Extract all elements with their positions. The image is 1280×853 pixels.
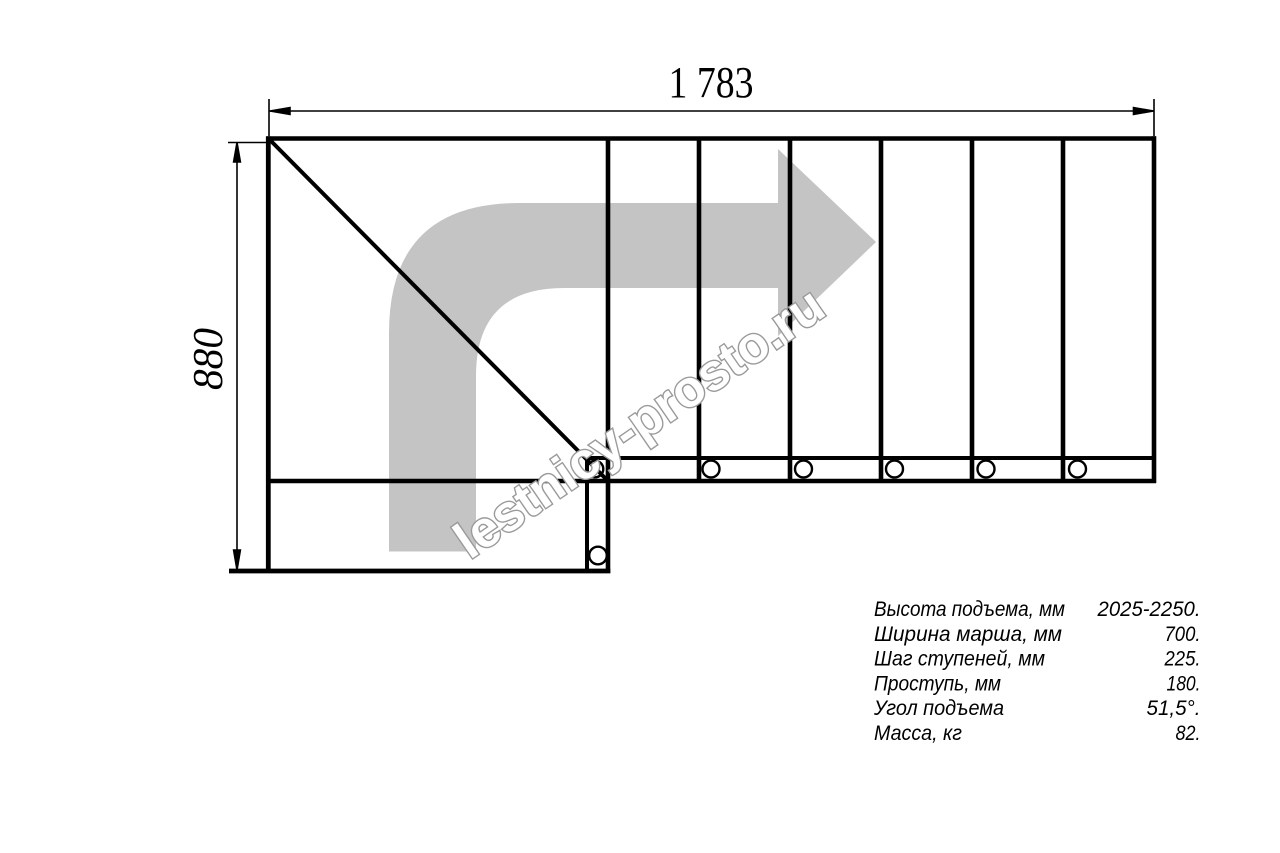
svg-text:lestnicy-prosto.ru: lestnicy-prosto.ru xyxy=(443,275,834,569)
svg-text:Масса, кг: Масса, кг xyxy=(874,721,962,745)
svg-text:880: 880 xyxy=(186,328,232,390)
svg-text:Высота подъема, мм: Высота подъема, мм xyxy=(874,597,1065,621)
svg-text:51,5°.: 51,5°. xyxy=(1147,696,1201,720)
svg-text:82.: 82. xyxy=(1176,721,1201,745)
svg-text:Шаг ступеней, мм: Шаг ступеней, мм xyxy=(874,647,1045,671)
svg-text:Угол подъема: Угол подъема xyxy=(873,696,1004,720)
svg-text:700.: 700. xyxy=(1165,622,1201,646)
svg-text:1 783: 1 783 xyxy=(669,58,754,107)
svg-text:Ширина марша, мм: Ширина марша, мм xyxy=(874,622,1062,646)
svg-text:Проступь, мм: Проступь, мм xyxy=(874,671,1001,695)
svg-text:225.: 225. xyxy=(1164,647,1201,671)
svg-text:180.: 180. xyxy=(1167,671,1201,695)
svg-text:2025-2250.: 2025-2250. xyxy=(1097,597,1201,621)
